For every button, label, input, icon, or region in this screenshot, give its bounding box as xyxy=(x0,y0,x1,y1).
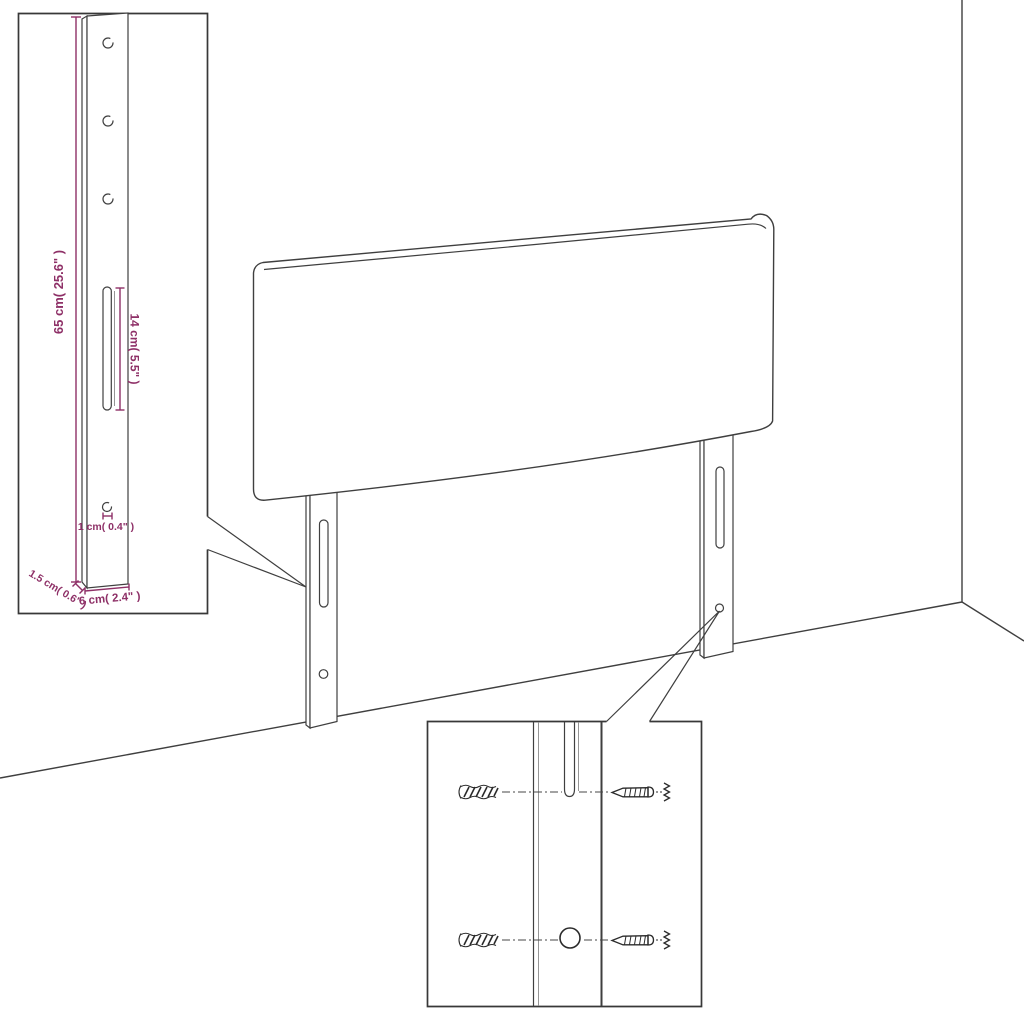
dimension-height-label: 65 cm( 25.6" ) xyxy=(51,250,66,334)
dimension-hole-label: 1 cm( 0.4" ) xyxy=(78,521,134,533)
bracket-slot xyxy=(103,287,111,410)
product-diagram: 65 cm( 25.6" ) 14 cm( 5.5" ) 1 cm( 0.4" … xyxy=(0,0,1024,1024)
mounting-callout-line xyxy=(607,611,720,722)
diagram-canvas: 65 cm( 25.6" ) 14 cm( 5.5" ) 1 cm( 0.4" … xyxy=(0,0,1024,1024)
leg-left-slot xyxy=(320,520,329,607)
leg-left-hole xyxy=(319,670,328,679)
bracket-side-face xyxy=(82,16,87,588)
callout-lines xyxy=(208,517,720,722)
leg-right-hole xyxy=(716,604,724,612)
panel-outline xyxy=(254,214,774,500)
leg-right-slot xyxy=(716,467,724,548)
bracket-detail-inset: 65 cm( 25.6" ) 14 cm( 5.5" ) 1 cm( 0.4" … xyxy=(19,13,208,614)
dimension-slot-label: 14 cm( 5.5" ) xyxy=(128,313,142,384)
mounting-detail-inset xyxy=(428,722,702,1007)
headboard-panel xyxy=(254,214,774,500)
floor-line-right xyxy=(962,602,1024,641)
bracket-callout-line xyxy=(208,517,307,588)
